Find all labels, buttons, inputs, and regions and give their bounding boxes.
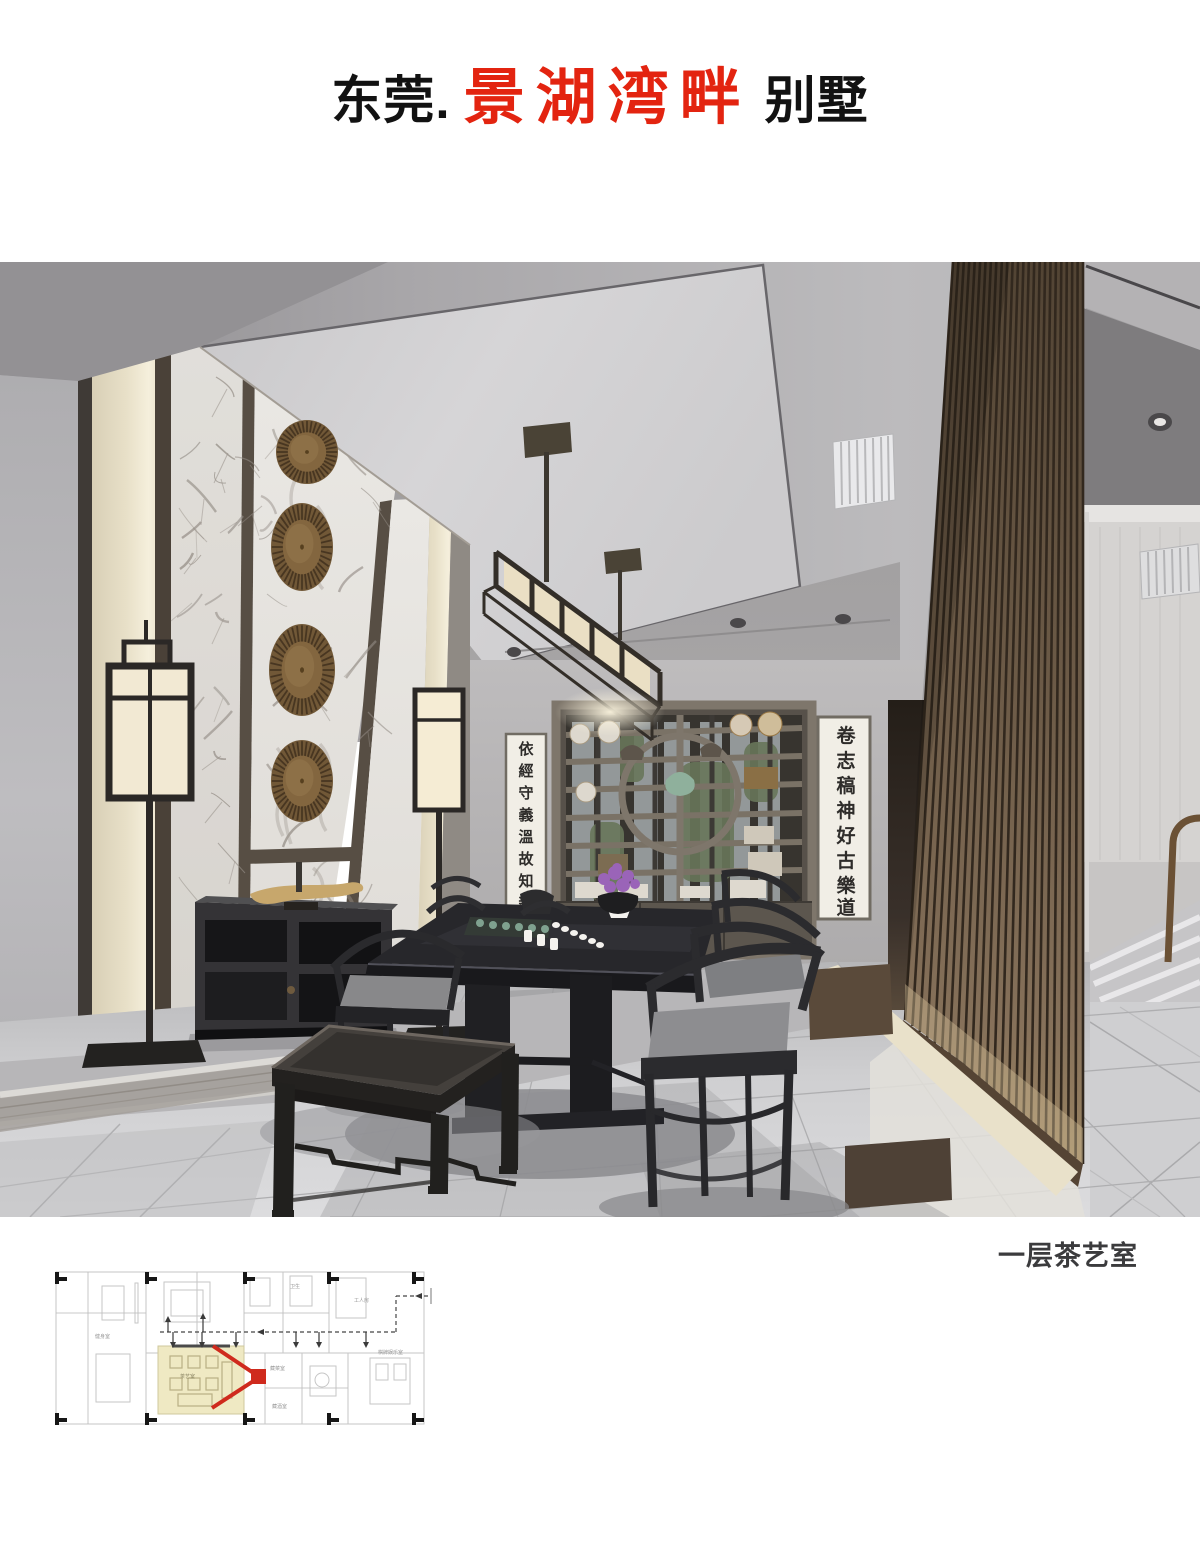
svg-text:道: 道: [836, 896, 855, 919]
svg-text:好: 好: [835, 824, 855, 847]
svg-text:健身室: 健身室: [95, 1333, 110, 1340]
svg-text:守: 守: [518, 784, 533, 802]
svg-text:志: 志: [836, 749, 855, 772]
svg-text:依: 依: [518, 740, 534, 758]
svg-text:藏酒室: 藏酒室: [272, 1403, 287, 1410]
svg-text:經: 經: [518, 762, 533, 780]
svg-text:棋牌娱乐室: 棋牌娱乐室: [378, 1349, 403, 1356]
svg-text:茶艺室: 茶艺室: [180, 1373, 195, 1380]
svg-text:神: 神: [836, 799, 855, 822]
svg-text:稿: 稿: [836, 774, 855, 797]
svg-text:知: 知: [518, 872, 533, 890]
svg-text:義: 義: [518, 806, 533, 824]
svg-text:藏菜室: 藏菜室: [270, 1365, 285, 1372]
svg-text:溫: 溫: [518, 828, 533, 846]
svg-text:古: 古: [836, 849, 855, 872]
svg-text:故: 故: [518, 850, 534, 868]
svg-text:卷: 卷: [835, 724, 856, 747]
svg-text:卫生: 卫生: [290, 1283, 300, 1290]
svg-text:樂: 樂: [836, 874, 856, 897]
svg-text:工人房: 工人房: [354, 1297, 369, 1304]
